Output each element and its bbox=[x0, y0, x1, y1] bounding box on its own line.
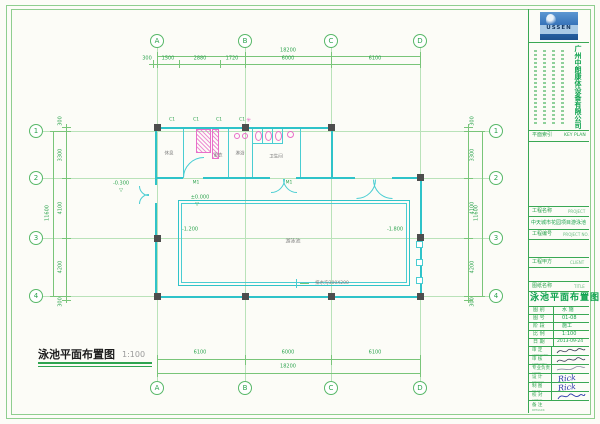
titleblock-line bbox=[528, 400, 589, 401]
partition-3 bbox=[252, 129, 253, 177]
dim-right-300-top: 300 bbox=[471, 116, 476, 126]
titleblock-line bbox=[528, 206, 589, 207]
dim-top-1500: 1500 bbox=[162, 57, 175, 62]
grid-bubble-B-bottom: B bbox=[238, 381, 252, 395]
dim-tick bbox=[331, 355, 332, 365]
dim-tick bbox=[464, 296, 485, 297]
logo-text: USSEN bbox=[540, 25, 578, 31]
dim-tick bbox=[157, 52, 158, 68]
column-D2 bbox=[417, 174, 424, 181]
grid-bubble-C-bottom: C bbox=[324, 381, 338, 395]
dim-tick bbox=[62, 300, 71, 301]
grid-bubble-2-left: 2 bbox=[29, 171, 43, 185]
shower-fixture bbox=[242, 133, 248, 139]
sign-label-en-6: REMARK bbox=[532, 408, 545, 413]
dim-left-300-bottom: 300 bbox=[59, 297, 64, 307]
titleblock-line bbox=[528, 267, 589, 268]
info-value-3: 1:100 bbox=[562, 331, 576, 337]
room-label-changing: 更衣 bbox=[214, 154, 223, 159]
titleblock-divider bbox=[528, 9, 529, 413]
grid-bubble-2-right: 2 bbox=[489, 171, 503, 185]
dim-left-300-top: 300 bbox=[59, 116, 64, 126]
titleblock-line bbox=[528, 141, 589, 142]
grid-bubble-A-bottom: A bbox=[150, 381, 164, 395]
info-value-0: 水 施 bbox=[562, 307, 574, 313]
dim-tick bbox=[220, 60, 221, 68]
drawing-title: 泳池平面布置图 bbox=[38, 346, 115, 362]
window-mark bbox=[416, 259, 423, 266]
room-label-wc: 卫生间 bbox=[269, 155, 283, 160]
partition-4 bbox=[300, 129, 301, 177]
company-contact-microtext bbox=[552, 48, 555, 124]
dim-tick bbox=[420, 52, 421, 68]
column-B1 bbox=[242, 124, 249, 131]
wc-stall-divider bbox=[272, 129, 273, 143]
dim-bottom-6100b: 6100 bbox=[369, 351, 382, 356]
grid-bubble-1-right: 1 bbox=[489, 124, 503, 138]
dim-line-left-total bbox=[53, 131, 54, 296]
dim-line-left-segments bbox=[66, 124, 67, 303]
wc-stall-divider bbox=[262, 129, 263, 143]
column-D4 bbox=[417, 293, 424, 300]
window-mark bbox=[416, 241, 423, 248]
info-label-1: 图 号 bbox=[533, 315, 545, 321]
grid-line-A bbox=[157, 47, 158, 382]
dim-tick bbox=[62, 238, 71, 239]
titleblock-line bbox=[528, 281, 589, 282]
locker-bank bbox=[196, 129, 211, 153]
shower-fixture bbox=[234, 133, 240, 139]
dim-line-top-segments bbox=[149, 64, 420, 65]
fixture-symbol: ✳ bbox=[246, 118, 251, 124]
titleblock-line bbox=[528, 130, 589, 131]
wall-left-lower bbox=[155, 203, 157, 298]
dim-top-total: 18200 bbox=[280, 49, 296, 54]
column-A3 bbox=[154, 235, 161, 242]
company-contact-microtext bbox=[561, 48, 564, 124]
grid-bubble-D-bottom: D bbox=[413, 381, 427, 395]
dim-tick bbox=[62, 178, 71, 179]
titleblock-line bbox=[528, 257, 589, 258]
column-C4 bbox=[328, 293, 335, 300]
cad-drawing-sheet: A B C D A B C D 1 2 3 4 1 2 3 4 18200 30… bbox=[0, 0, 600, 424]
pool-deep-elevation: -1.800 bbox=[387, 228, 403, 233]
dim-tick bbox=[245, 52, 246, 68]
project-label-en: PROJECT bbox=[568, 209, 585, 214]
dim-line-right-total bbox=[482, 131, 483, 296]
entrance-outside-elevation: -0.300 bbox=[113, 182, 129, 187]
dim-line-bottom-total bbox=[157, 373, 420, 374]
grid-bubble-1-left: 1 bbox=[29, 124, 43, 138]
grid-bubble-B-top: B bbox=[238, 34, 252, 48]
info-label-2: 阶 段 bbox=[533, 323, 545, 329]
dim-tick bbox=[464, 238, 473, 239]
toilet-fixture bbox=[275, 131, 282, 141]
door-tag: M1 bbox=[193, 181, 200, 186]
dim-bottom-6100a: 6100 bbox=[194, 351, 207, 356]
door-tag: M1 bbox=[286, 181, 293, 186]
drain-leader bbox=[300, 283, 309, 284]
dim-line-bottom-segments bbox=[157, 359, 420, 360]
window-tag: C1 bbox=[216, 118, 222, 123]
dim-tick bbox=[464, 127, 473, 128]
company-logo: USSEN bbox=[540, 12, 578, 40]
keyplan-label-en: KEY PLAN bbox=[564, 133, 586, 138]
window-tag: C1 bbox=[193, 118, 199, 123]
grid-bubble-C-top: C bbox=[324, 34, 338, 48]
window-tag: C1 bbox=[169, 118, 175, 123]
elevation-marker-icon: ▽ bbox=[195, 203, 199, 208]
wall-row2-seg3 bbox=[296, 177, 333, 179]
titleblock-line bbox=[528, 216, 589, 217]
info-label-0: 图 别 bbox=[533, 307, 545, 313]
dim-left-3300: 3300 bbox=[59, 149, 64, 162]
wall-north-hall-seg1 bbox=[333, 177, 355, 179]
toilet-fixture bbox=[265, 131, 272, 141]
grid-bubble-3-left: 3 bbox=[29, 231, 43, 245]
project-label: 工程名称 bbox=[532, 208, 552, 214]
room-label-rest: 休息 bbox=[165, 152, 174, 157]
entrance-inside-elevation: ±0.000 bbox=[191, 196, 210, 201]
keyplan-label: 平面索引 bbox=[532, 132, 552, 138]
grid-bubble-3-right: 3 bbox=[489, 231, 503, 245]
column-A4 bbox=[154, 293, 161, 300]
dim-right-total: 11600 bbox=[475, 205, 480, 221]
dim-tick bbox=[62, 127, 71, 128]
wc-stall-front bbox=[252, 143, 283, 144]
dim-top-6000: 6000 bbox=[282, 57, 295, 62]
sheet-title-label-en: TITLE bbox=[574, 284, 585, 289]
info-value-4: 2013-09-24 bbox=[557, 339, 583, 345]
client-label-en: CLIENT bbox=[570, 260, 584, 265]
column-A1 bbox=[154, 124, 161, 131]
dim-tick bbox=[153, 60, 154, 68]
project-no-label-en: PROJECT NO. bbox=[563, 232, 589, 237]
grid-bubble-4-right: 4 bbox=[489, 289, 503, 303]
dim-left-total: 11600 bbox=[46, 205, 51, 221]
title-underline-thin bbox=[38, 366, 152, 367]
dim-tick bbox=[50, 131, 71, 132]
wall-row2-seg1 bbox=[155, 177, 183, 179]
column-D3 bbox=[417, 234, 424, 241]
dim-right-3300: 3300 bbox=[471, 149, 476, 162]
company-contact-microtext bbox=[543, 48, 546, 124]
partition-2 bbox=[228, 129, 229, 177]
sheet-title: 泳池平面布置图 bbox=[530, 292, 600, 304]
column-B4 bbox=[242, 293, 249, 300]
dim-bottom-6000: 6000 bbox=[282, 351, 295, 356]
dim-tick bbox=[157, 355, 158, 377]
project-no-label: 工程编号 bbox=[532, 231, 552, 237]
info-value-2: 施工 bbox=[562, 323, 572, 329]
dim-tick bbox=[50, 296, 71, 297]
dim-tick bbox=[245, 355, 246, 365]
window-tag: C1 bbox=[239, 118, 245, 123]
dim-tick bbox=[464, 300, 473, 301]
info-table-divider bbox=[553, 306, 554, 346]
dim-tick bbox=[179, 60, 180, 68]
titleblock-line bbox=[528, 239, 589, 240]
dim-top-2880: 2880 bbox=[194, 57, 207, 62]
grid-bubble-A-top: A bbox=[150, 34, 164, 48]
dim-bottom-total: 18200 bbox=[280, 365, 296, 370]
client-label: 工程甲方 bbox=[532, 259, 552, 265]
toilet-fixture bbox=[255, 131, 262, 141]
room-label-shower: 淋浴 bbox=[236, 152, 245, 157]
dim-top-300: 300 bbox=[142, 57, 152, 62]
info-label-3: 比 例 bbox=[533, 331, 545, 337]
dim-tick bbox=[464, 131, 485, 132]
dim-left-4100: 4100 bbox=[59, 202, 64, 215]
dim-top-1720: 1720 bbox=[226, 57, 239, 62]
company-name: 广州中朗康体设备有限公司 bbox=[570, 45, 586, 129]
pool-label: 游泳池 bbox=[285, 238, 300, 245]
grid-bubble-4-left: 4 bbox=[29, 289, 43, 303]
info-value-1: 01-08 bbox=[562, 315, 577, 321]
drain-tick bbox=[296, 279, 297, 288]
titleblock-line bbox=[528, 42, 589, 43]
dim-right-300-bottom: 300 bbox=[471, 297, 476, 307]
dim-top-6100: 6100 bbox=[369, 57, 382, 62]
dim-tick bbox=[464, 178, 473, 179]
dim-right-4200: 4200 bbox=[471, 261, 476, 274]
wall-rooms-right bbox=[331, 127, 333, 179]
pool-shallow-elevation: -1.200 bbox=[182, 228, 198, 233]
grid-bubble-D-top: D bbox=[413, 34, 427, 48]
dim-tick bbox=[331, 52, 332, 68]
company-contact-microtext bbox=[534, 48, 537, 124]
titleblock-line bbox=[528, 229, 589, 230]
project-name: 中天城市花园项目游泳池 bbox=[531, 220, 586, 226]
wall-row2-seg2 bbox=[203, 177, 270, 179]
window-mark bbox=[416, 277, 423, 284]
drain-note: 排水沟300X200 bbox=[315, 280, 349, 286]
washbasin-fixture bbox=[287, 131, 294, 138]
elevation-marker-icon: ▽ bbox=[119, 189, 123, 194]
wc-stall-divider bbox=[282, 129, 283, 143]
drawing-scale: 1:100 bbox=[122, 350, 145, 359]
dim-left-4200: 4200 bbox=[59, 261, 64, 274]
title-underline-thick bbox=[38, 362, 152, 364]
info-label-4: 日 期 bbox=[533, 339, 545, 345]
wall-south bbox=[155, 296, 422, 298]
dim-tick bbox=[420, 355, 421, 377]
column-C1 bbox=[328, 124, 335, 131]
sheet-title-label: 图纸名称 bbox=[532, 283, 552, 289]
